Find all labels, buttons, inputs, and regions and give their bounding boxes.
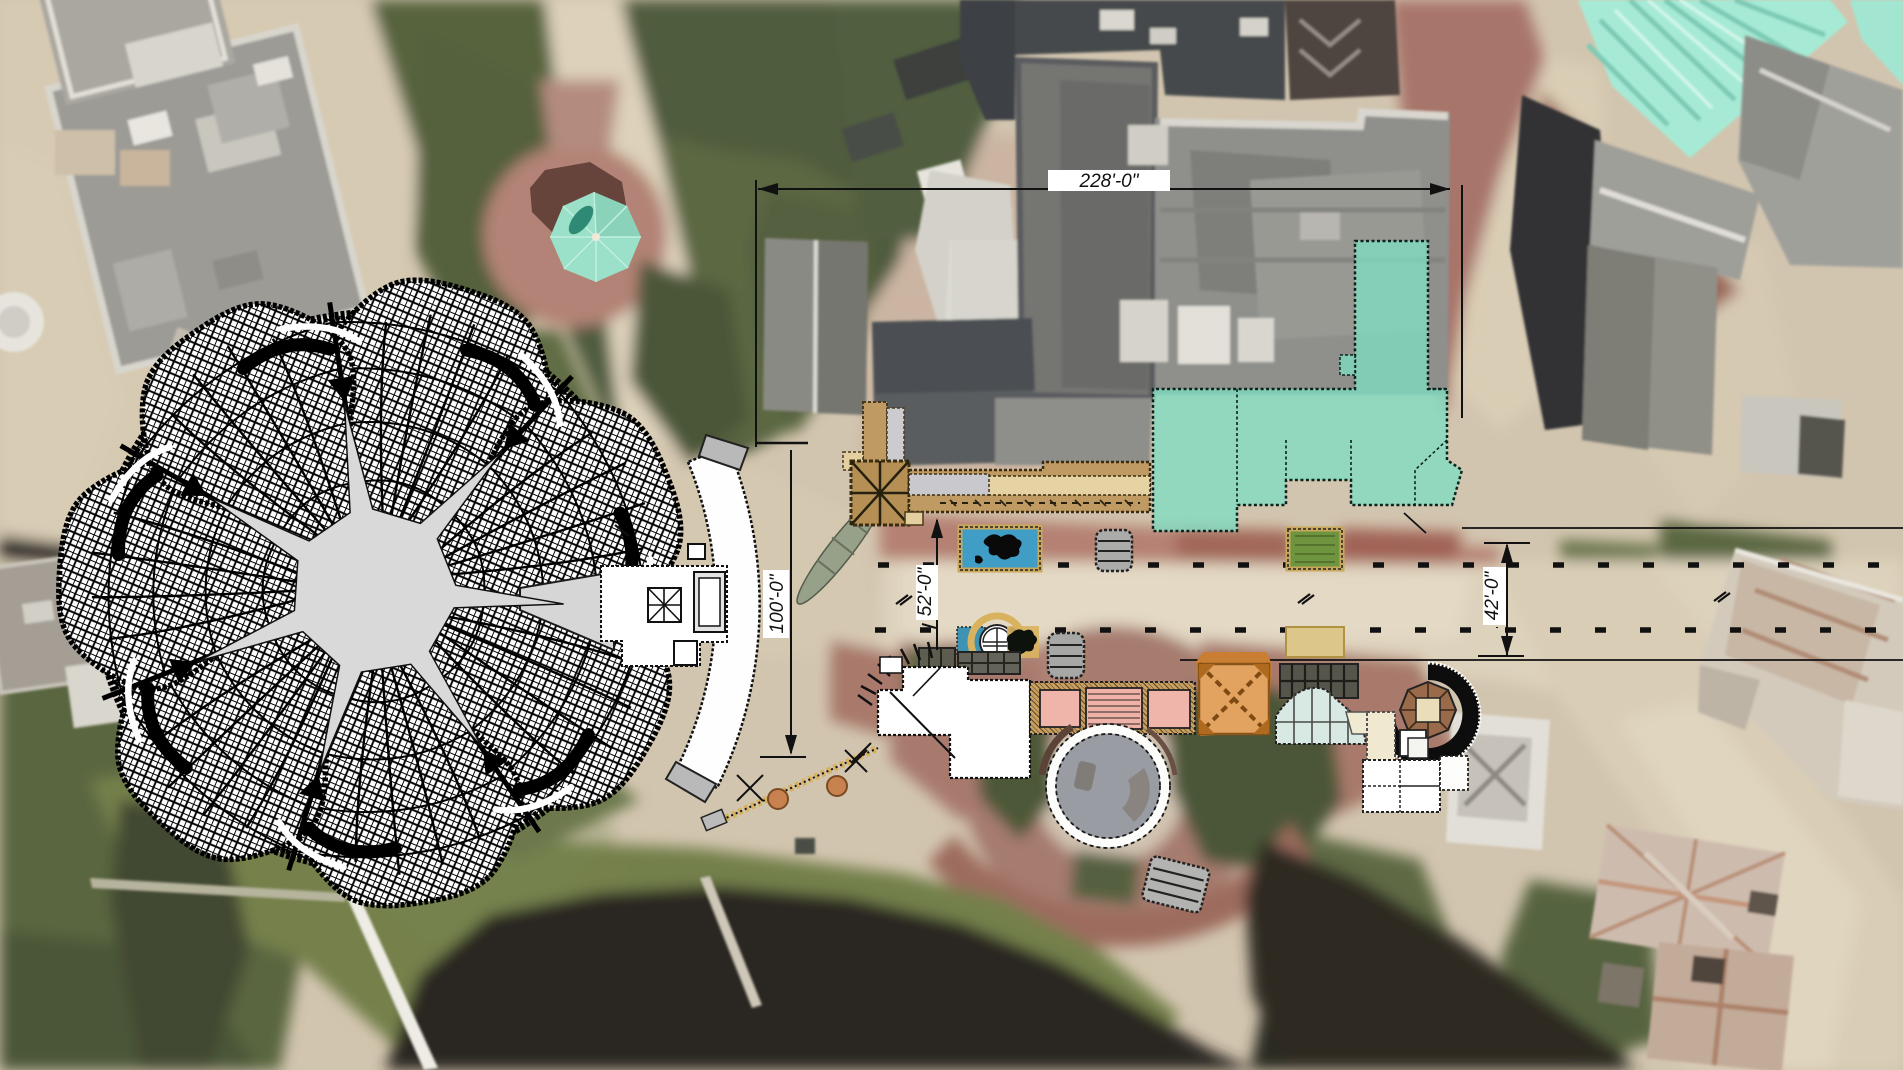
svg-text:100'-0": 100'-0" bbox=[767, 573, 788, 633]
svg-text:52'-0": 52'-0" bbox=[915, 567, 936, 617]
svg-text:228'-0": 228'-0" bbox=[1079, 171, 1140, 192]
svg-text:42'-0": 42'-0" bbox=[1482, 571, 1503, 621]
